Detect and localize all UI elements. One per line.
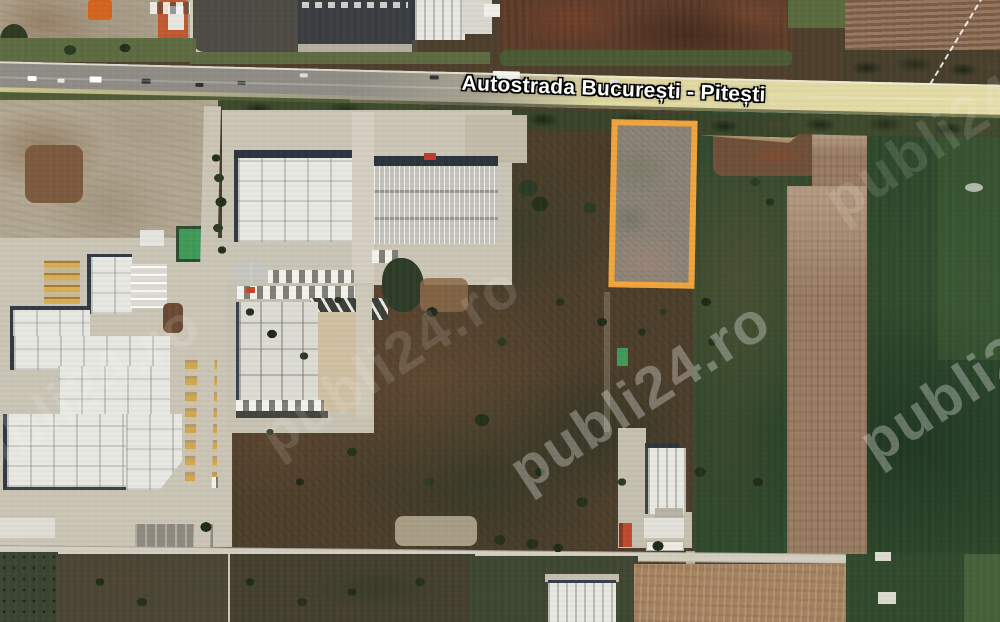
vehicle <box>430 75 439 79</box>
truck <box>484 4 500 17</box>
warehouse-small <box>645 448 686 514</box>
service-lane <box>352 112 374 284</box>
red-building <box>619 523 632 547</box>
parked-cars <box>302 2 408 8</box>
orchard <box>0 552 58 622</box>
plowed-strip <box>787 186 867 558</box>
dirt-patch <box>25 145 83 203</box>
red-truck <box>424 153 436 160</box>
lumber-stacks <box>44 260 80 304</box>
small-building <box>0 518 55 538</box>
satellite-map: Autostrada București - Pitești <box>0 0 1000 622</box>
warehouse-2 <box>374 166 498 244</box>
warehouse-bottom <box>548 580 616 622</box>
field-spot <box>965 183 983 192</box>
construction-equipment <box>88 0 112 20</box>
white-building <box>644 518 684 538</box>
white-building <box>646 541 684 551</box>
vehicle <box>195 83 203 87</box>
shed <box>875 552 891 561</box>
field <box>230 554 475 622</box>
shed <box>878 592 896 604</box>
highway-label: Autostrada București - Pitești <box>461 72 766 108</box>
grass-strip <box>0 38 196 62</box>
clearing <box>395 516 477 546</box>
parcel-highlight <box>608 119 697 289</box>
grass-strip <box>190 52 490 64</box>
warehouse-1 <box>234 158 352 242</box>
red-container <box>246 287 255 293</box>
warehouse-roof <box>412 0 465 40</box>
field <box>56 554 228 622</box>
field <box>964 554 1000 622</box>
vehicle <box>300 73 308 77</box>
grass-strip <box>500 50 792 66</box>
plowed-field <box>634 564 848 622</box>
small-building <box>140 230 164 246</box>
factory-roof <box>87 254 132 314</box>
